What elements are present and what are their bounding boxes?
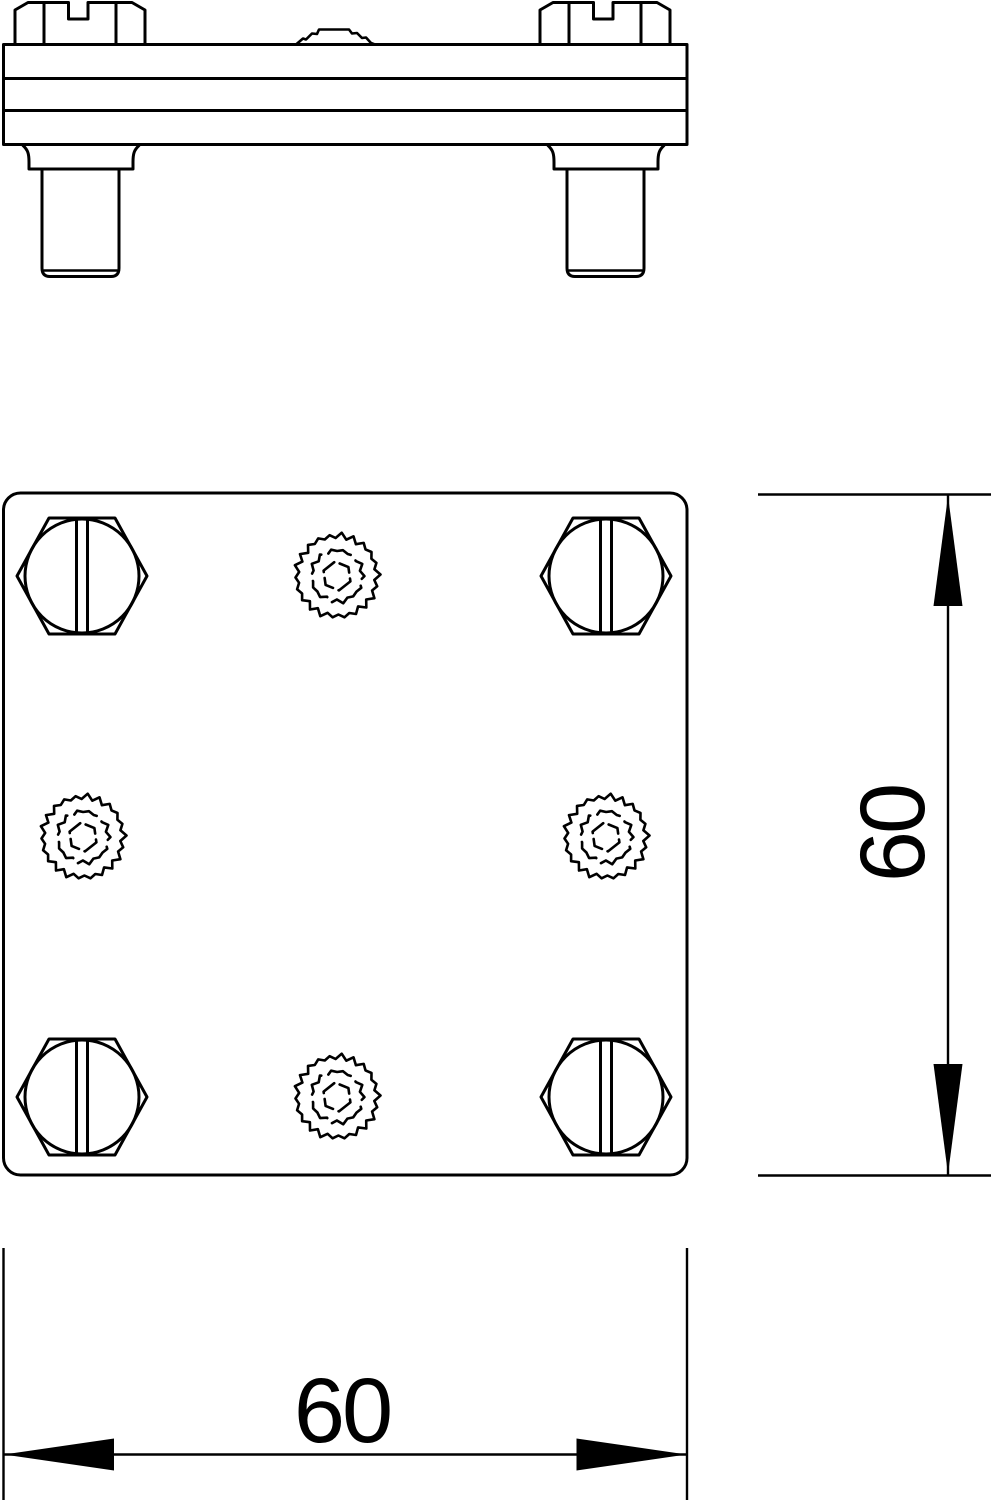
width-dimension-label: 60 [294,1360,390,1462]
hex-bolt [541,518,671,634]
serrated-contact-bump [296,30,375,45]
plate-body-outline [4,45,688,145]
dimension-height: 60 [758,495,991,1176]
hex-outline [541,518,671,634]
head-circle [549,519,663,633]
hex-bolt [17,1039,147,1155]
serration-outer-ring [41,794,127,879]
serration-outer-ring [295,1054,381,1139]
head-circle [549,1040,663,1154]
serrated-contact [564,794,650,879]
hex-recess [593,823,620,852]
serrated-contact [295,533,381,618]
serration-inner-ring [580,811,634,865]
serration-outer-ring [295,533,381,618]
hex-bolt [17,518,147,634]
serration-inner-ring [57,811,111,865]
head-circle [25,1040,139,1154]
hex-recess [324,562,351,591]
dimension-width: 60 [4,1248,688,1500]
screw-head-left [15,3,145,45]
head-circle [25,519,139,633]
stud-collar [23,146,139,170]
screw-head-right [540,3,670,45]
plan-view [4,493,688,1175]
serrated-contact [295,1054,381,1139]
hex-outline [17,1039,147,1155]
serration-inner-ring [311,1071,365,1125]
arrowhead-up [934,496,963,606]
technical-drawing-canvas: 60 60 [0,0,993,1500]
threaded-stud-right [548,146,664,277]
stud-shaft [42,169,119,277]
arrowhead-left [4,1439,114,1471]
hex-outline [17,518,147,634]
hex-recess [324,1083,351,1112]
hex-outline [541,1039,671,1155]
serration-outer-ring [564,794,650,879]
hex-recess [70,823,97,852]
side-view [4,3,688,277]
threaded-stud-left [23,146,139,277]
hex-bolt [541,1039,671,1155]
screw-head-outline [15,3,145,45]
arrowhead-right [577,1439,687,1471]
height-dimension-label: 60 [842,786,944,882]
arrowhead-down [934,1064,963,1174]
serration-inner-ring [311,550,365,604]
technical-drawing-page: 60 60 [0,0,993,1500]
serrated-contact [41,794,127,879]
